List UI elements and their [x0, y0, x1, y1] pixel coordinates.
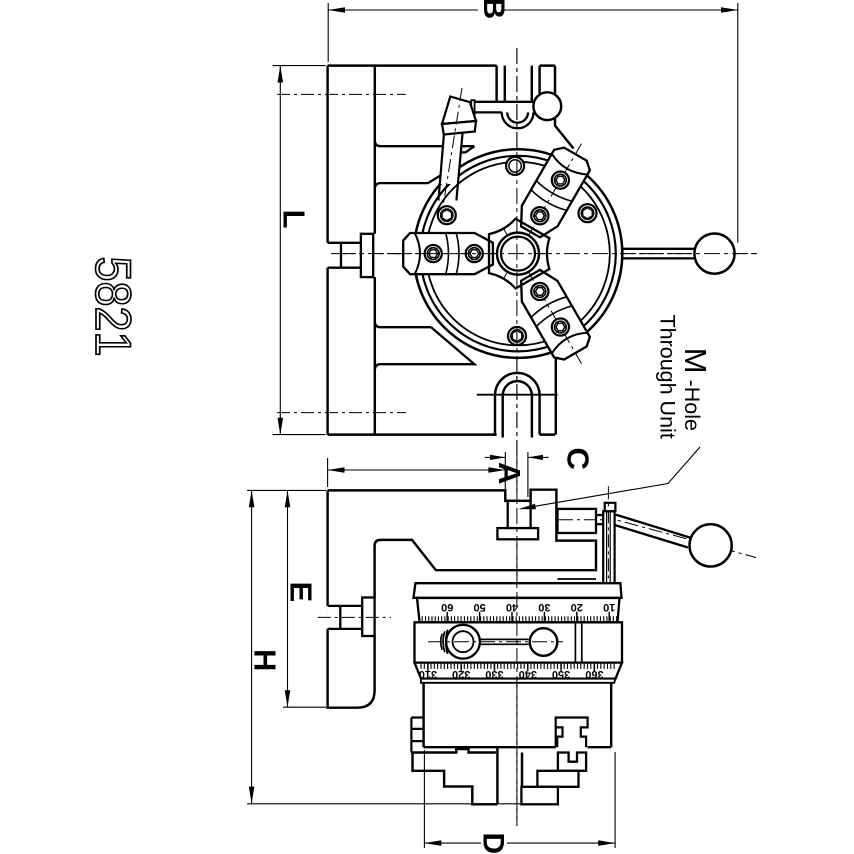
svg-text:5821: 5821	[85, 257, 141, 357]
svg-text:50: 50	[473, 601, 485, 613]
svg-text:30: 30	[538, 601, 550, 613]
svg-text:L: L	[277, 210, 312, 229]
svg-text:B: B	[477, 0, 510, 19]
svg-text:A: A	[492, 462, 527, 484]
svg-text:E: E	[284, 582, 319, 603]
svg-text:320: 320	[452, 668, 470, 680]
svg-text:360: 360	[585, 668, 603, 680]
svg-text:10: 10	[603, 601, 615, 613]
svg-text:D: D	[476, 833, 509, 854]
svg-text:20: 20	[571, 601, 583, 613]
svg-text:C: C	[561, 448, 596, 470]
svg-text:H: H	[248, 649, 283, 671]
svg-text:330: 330	[485, 668, 503, 680]
svg-text:40: 40	[506, 601, 518, 613]
svg-text:340: 340	[519, 668, 537, 680]
svg-text:350: 350	[552, 668, 570, 680]
svg-text:60: 60	[441, 601, 453, 613]
svg-text:Through Unit: Through Unit	[656, 315, 680, 439]
svg-text:310: 310	[419, 668, 437, 680]
